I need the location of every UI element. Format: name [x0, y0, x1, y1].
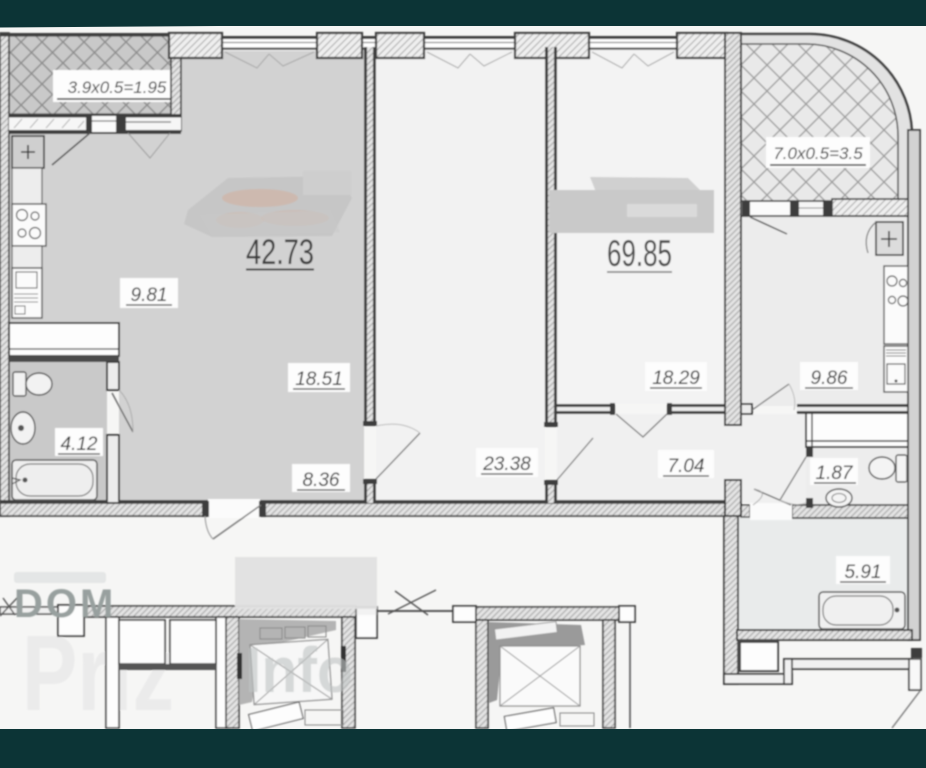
svg-text:4.12: 4.12: [61, 434, 98, 455]
svg-text:5.91: 5.91: [845, 562, 882, 583]
svg-text:3.9х0.5=1.95: 3.9х0.5=1.95: [68, 78, 167, 97]
svg-text:9.86: 9.86: [811, 368, 848, 389]
svg-text:Info: Info: [245, 634, 353, 706]
svg-text:1.87: 1.87: [816, 463, 854, 484]
svg-text:23.38: 23.38: [482, 454, 531, 475]
svg-text:69.85: 69.85: [607, 233, 672, 274]
svg-text:DOM: DOM: [14, 582, 116, 626]
svg-text:7.04: 7.04: [668, 456, 705, 477]
svg-text:7.0х0.5=3.5: 7.0х0.5=3.5: [773, 144, 863, 163]
svg-text:18.29: 18.29: [652, 368, 700, 389]
svg-text:9.81: 9.81: [131, 285, 168, 306]
svg-text:8.36: 8.36: [303, 470, 340, 491]
svg-text:18.51: 18.51: [295, 369, 343, 390]
svg-text:42.73: 42.73: [246, 233, 314, 272]
